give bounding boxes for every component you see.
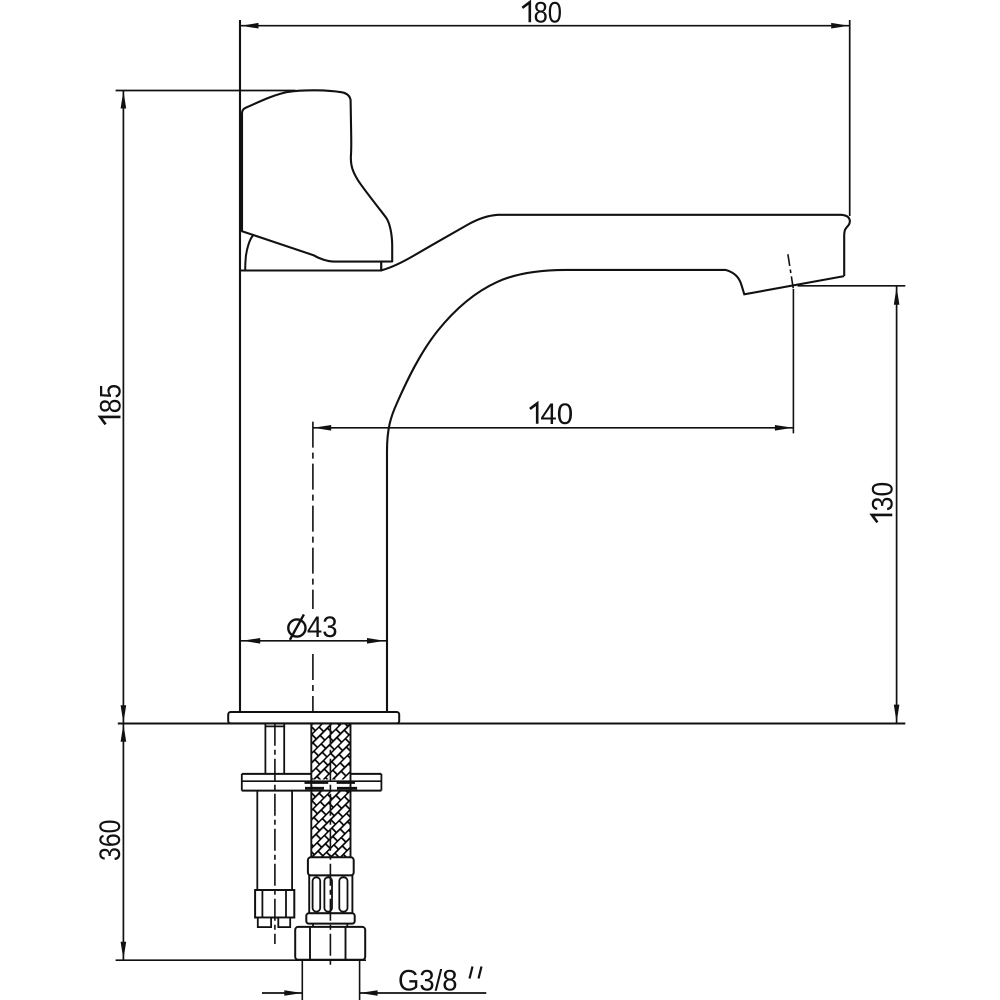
svg-text:30: 30 — [866, 482, 899, 511]
svg-text:G3/8: G3/8 — [398, 964, 458, 997]
svg-text:360: 360 — [94, 820, 127, 862]
svg-text:80: 80 — [534, 0, 562, 30]
svg-text:40: 40 — [540, 398, 573, 431]
svg-text:85: 85 — [95, 384, 128, 413]
svg-text:43: 43 — [307, 611, 338, 644]
